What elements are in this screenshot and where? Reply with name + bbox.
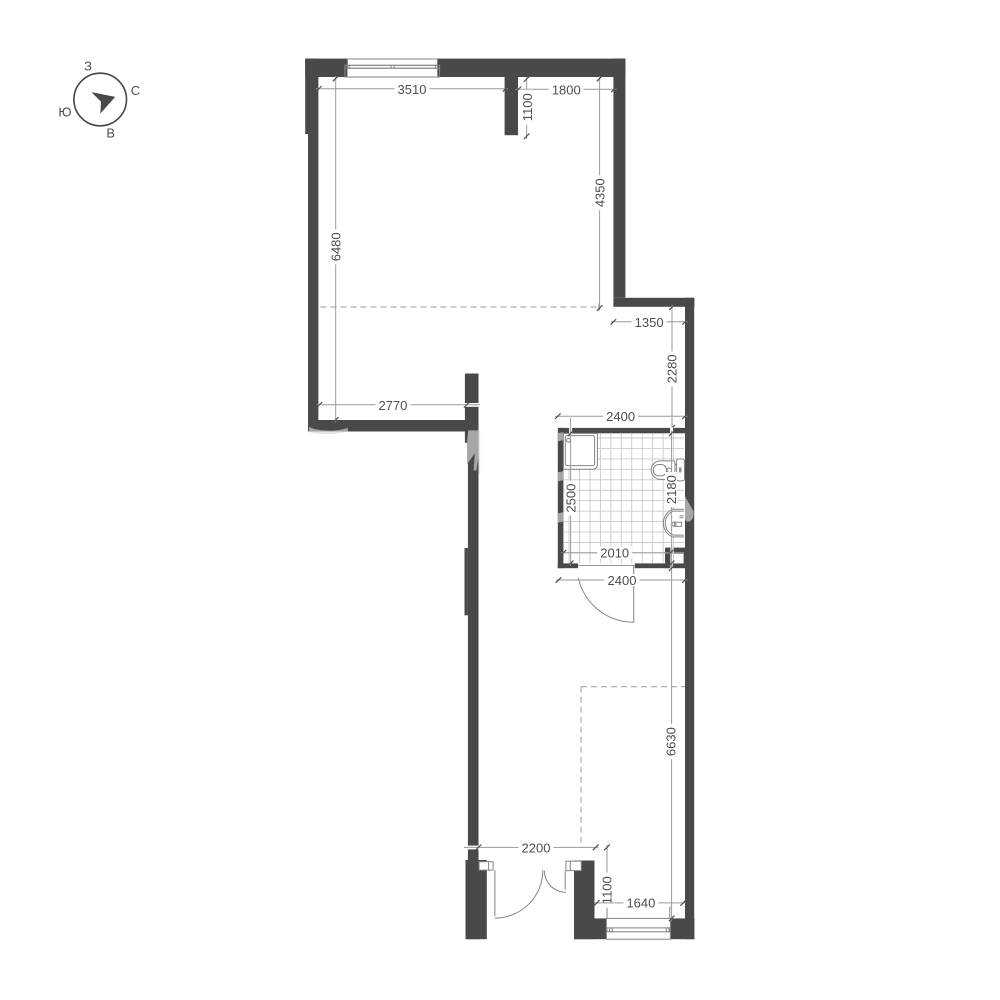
svg-text:В: В (106, 126, 115, 141)
svg-text:2180: 2180 (664, 475, 679, 504)
svg-text:2200: 2200 (522, 840, 551, 855)
svg-text:3510: 3510 (398, 82, 427, 97)
svg-text:С: С (131, 83, 140, 98)
svg-text:6630: 6630 (663, 727, 678, 756)
svg-text:2010: 2010 (600, 546, 629, 561)
svg-text:2770: 2770 (378, 398, 407, 413)
svg-text:1100: 1100 (599, 876, 614, 904)
svg-text:1100: 1100 (520, 93, 535, 121)
svg-text:2500: 2500 (564, 484, 579, 513)
svg-text:2400: 2400 (608, 573, 637, 588)
svg-text:Ю: Ю (58, 104, 71, 119)
svg-text:1350: 1350 (635, 315, 664, 330)
svg-text:6480: 6480 (329, 232, 344, 261)
svg-text:4350: 4350 (593, 178, 608, 207)
svg-text:З: З (84, 59, 92, 74)
svg-text:1800: 1800 (552, 82, 581, 97)
svg-text:2280: 2280 (665, 354, 680, 383)
svg-text:2400: 2400 (606, 409, 635, 424)
svg-text:1640: 1640 (626, 895, 655, 910)
